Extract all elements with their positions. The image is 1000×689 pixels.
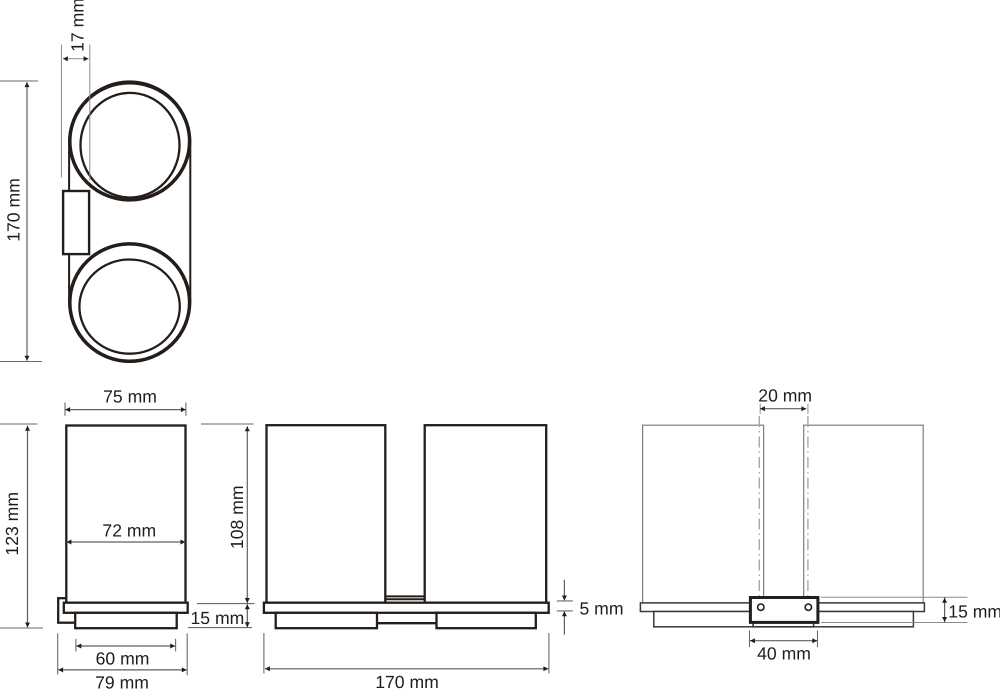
svg-text:108 mm: 108 mm (227, 486, 247, 550)
svg-text:40 mm: 40 mm (757, 644, 811, 664)
svg-text:20 mm: 20 mm (758, 385, 812, 405)
svg-text:5 mm: 5 mm (580, 599, 624, 619)
svg-text:123 mm: 123 mm (2, 492, 22, 556)
svg-text:170 mm: 170 mm (375, 672, 439, 689)
svg-text:170 mm: 170 mm (4, 178, 24, 242)
svg-text:15 mm: 15 mm (948, 601, 1000, 621)
svg-text:17 mm: 17 mm (67, 0, 87, 52)
svg-text:15 mm: 15 mm (191, 608, 245, 628)
svg-text:79 mm: 79 mm (95, 672, 149, 689)
svg-text:72 mm: 72 mm (102, 521, 156, 541)
svg-text:60 mm: 60 mm (96, 649, 150, 669)
svg-text:75 mm: 75 mm (103, 387, 157, 407)
